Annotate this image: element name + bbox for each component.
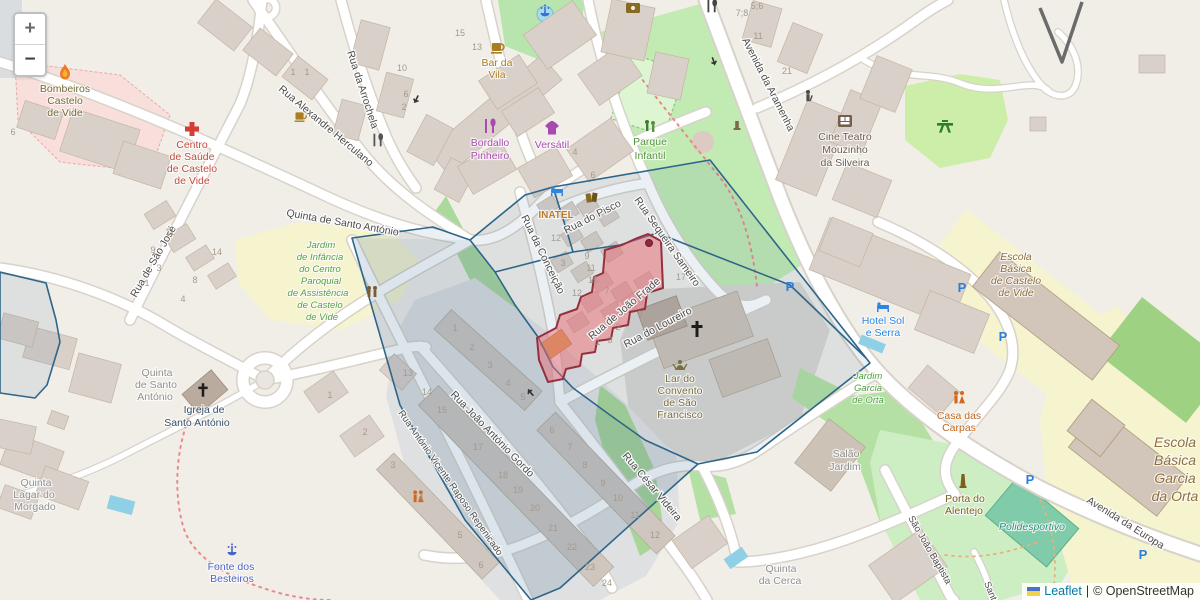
svg-text:Garcia: Garcia — [1154, 470, 1195, 486]
svg-text:de Vide: de Vide — [174, 175, 210, 187]
house-number: 6 — [549, 425, 554, 435]
house-number: 6 — [403, 89, 408, 99]
artwork-icon — [626, 3, 640, 13]
house-number: 1 — [144, 278, 149, 288]
attribution-bar: Leaflet | © OpenStreetMap — [1022, 583, 1200, 600]
poi-label-parque-infantil: Parque — [633, 136, 667, 148]
house-number: 24 — [602, 578, 612, 588]
house-number: 4 — [505, 378, 510, 388]
poi-label-inatel: INATEL — [538, 210, 573, 221]
house-number: 21 — [782, 66, 792, 76]
survey-overlay-layer[interactable] — [0, 160, 870, 600]
survey-polygon-west — [0, 272, 60, 398]
house-number: 22 — [567, 542, 577, 552]
house-number: 18 — [498, 470, 508, 480]
house-number: 12 — [650, 530, 660, 540]
poi-label-porta-alentejo: Porta do — [945, 493, 985, 505]
parking-icon: P — [1139, 547, 1148, 562]
hotel-bed-icon — [877, 302, 889, 312]
house-number: 11 — [165, 227, 174, 237]
house-number: 12 — [572, 288, 582, 298]
poi-label-bar-da-vila: Bar da — [482, 57, 513, 69]
svg-text:de Castelo: de Castelo — [991, 275, 1041, 287]
poi-label-lar-convento: Lar do — [665, 373, 695, 385]
house-number: 7;8 — [736, 8, 749, 18]
poi-label-bombeiros: Bombeiros — [40, 83, 90, 95]
svg-text:da Orta: da Orta — [1152, 488, 1199, 504]
house-number: 3 — [487, 360, 492, 370]
house-number: 23 — [585, 562, 595, 572]
svg-text:Francisco: Francisco — [657, 409, 703, 421]
house-number: 3 — [560, 258, 565, 268]
poi-label-versatil: Versátil — [535, 139, 569, 151]
cinema-icon — [838, 115, 852, 127]
house-number: 15 — [455, 28, 465, 38]
poi-label-centro-saude: Centro — [176, 139, 208, 151]
house-number: 9 — [584, 251, 589, 261]
svg-text:de Assistência: de Assistência — [288, 288, 349, 299]
poi-label-quinta-lagar: Quinta — [21, 477, 52, 489]
poi-label-quinta-cerca: Quinta — [766, 563, 797, 575]
house-number: 4 — [572, 147, 577, 157]
hairdresser-icon — [806, 90, 813, 101]
zoom-control: + − — [13, 12, 47, 77]
parcel-vertex-marker[interactable] — [646, 240, 653, 247]
svg-text:de Vide: de Vide — [306, 312, 338, 323]
house-number: 14 — [212, 247, 222, 257]
svg-text:Vila: Vila — [488, 69, 505, 81]
svg-text:de Vide: de Vide — [47, 107, 83, 119]
svg-text:Convento: Convento — [658, 385, 703, 397]
map-viewport[interactable]: Rua Alexandre Herculano Rua da Arrochela… — [0, 0, 1200, 600]
poi-label-cine-teatro: Cine Teatro — [818, 131, 872, 143]
fire-station-icon — [60, 64, 70, 80]
svg-text:Castelo: Castelo — [47, 95, 83, 107]
house-number: 1 — [327, 390, 332, 400]
zoom-out-button[interactable]: − — [15, 45, 45, 75]
svg-text:de Infância: de Infância — [297, 252, 343, 263]
poi-label-jardim-garcia: Jardim — [853, 371, 883, 382]
house-number: 1 — [452, 323, 457, 333]
ukraine-flag-icon — [1027, 587, 1040, 596]
svg-text:Lagar do: Lagar do — [13, 489, 55, 501]
house-number: 11 — [586, 263, 595, 273]
poi-label-casa-carpas: Casa das — [937, 410, 981, 422]
house-number: 11 — [753, 31, 762, 41]
house-number: 6 — [590, 170, 595, 180]
house-number: 15 — [588, 275, 598, 285]
clothing-shop-icon — [545, 121, 559, 135]
house-number: 2 — [615, 322, 620, 332]
house-number: 10 — [397, 63, 407, 73]
house-number: 1 — [290, 67, 295, 77]
osm-attribution-text: © OpenStreetMap — [1093, 584, 1194, 598]
svg-text:Besteiros: Besteiros — [210, 573, 254, 585]
oneway-arrow-icon — [413, 94, 421, 103]
house-number: 1 — [304, 67, 309, 77]
house-number: 2 — [401, 102, 406, 112]
poi-label-fonte-besteiros: Fonte dos — [208, 561, 255, 573]
svg-text:de São: de São — [663, 397, 696, 409]
house-number: 3 — [156, 263, 161, 273]
house-number: 12 — [551, 233, 561, 243]
poi-label-escola-castelo-vide: Escola — [1000, 251, 1032, 263]
svg-text:Paroquial: Paroquial — [301, 276, 342, 287]
poi-label-jardim-infancia: Jardim — [306, 240, 336, 251]
svg-text:e Serra: e Serra — [866, 327, 901, 339]
zoom-in-button[interactable]: + — [15, 14, 45, 45]
poi-label-igreja-santo-antonio: Igreja de — [184, 404, 225, 416]
house-number: 1 — [595, 337, 600, 347]
svg-text:de Saúde: de Saúde — [170, 151, 215, 163]
house-number: 6 — [478, 560, 483, 570]
svg-text:Infantil: Infantil — [635, 150, 666, 162]
parking-icon: P — [1026, 472, 1035, 487]
house-number: 3 — [607, 335, 612, 345]
house-number: 17 — [473, 442, 483, 452]
house-number: 4 — [418, 492, 423, 502]
house-number: 13 — [472, 42, 482, 52]
poi-label-hotel-sol-serra: Hotel Sol — [862, 315, 905, 327]
svg-text:Básica: Básica — [1000, 263, 1032, 275]
house-number: 20 — [530, 503, 540, 513]
svg-text:Alentejo: Alentejo — [945, 505, 983, 517]
house-number: 7 — [604, 286, 609, 296]
poi-label-quinta-santo-antonio: Quinta — [142, 367, 173, 379]
svg-text:Morgado: Morgado — [14, 501, 56, 513]
fountain-icon — [228, 543, 237, 555]
map-canvas[interactable]: Rua Alexandre Herculano Rua da Arrochela… — [0, 0, 1200, 600]
house-number: 2 — [469, 342, 474, 352]
svg-text:Pinheiro: Pinheiro — [471, 150, 510, 162]
house-number: 3 — [390, 460, 395, 470]
house-number: 9 — [150, 245, 155, 255]
house-number: 10 — [613, 493, 623, 503]
house-number: 5;6 — [751, 1, 764, 11]
house-number: 6 — [10, 127, 15, 137]
poi-label-bordallo-pinheiro: Bordallo — [471, 137, 510, 149]
svg-text:António: António — [137, 391, 173, 403]
poi-label-salao-jardim: Salão — [833, 448, 860, 460]
parking-icon: P — [999, 329, 1008, 344]
poi-label-escola-garcia-orta: Escola — [1154, 434, 1196, 450]
house-number: 2 — [362, 427, 367, 437]
house-number: 11 — [630, 510, 639, 520]
house-number: 17 — [676, 272, 686, 282]
restaurant-icon — [374, 133, 384, 146]
attribution-separator: | — [1086, 584, 1089, 598]
house-number: 15 — [437, 405, 447, 415]
svg-text:de Vide: de Vide — [998, 287, 1034, 299]
svg-text:de Castelo: de Castelo — [167, 163, 217, 175]
poi-label-polidesportivo: Polidesportivo — [999, 521, 1065, 533]
house-number: 5 — [457, 530, 462, 540]
house-number: 5 — [520, 392, 525, 402]
svg-text:de Castelo: de Castelo — [297, 300, 342, 311]
house-number: 19 — [513, 485, 523, 495]
svg-text:Mouzinho: Mouzinho — [822, 144, 868, 156]
house-number: 4 — [180, 294, 185, 304]
leaflet-link[interactable]: Leaflet — [1044, 584, 1082, 598]
svg-text:do Centro: do Centro — [299, 264, 341, 275]
house-number: 13 — [403, 368, 413, 378]
house-number: 8 — [192, 275, 197, 285]
svg-text:Santo António: Santo António — [164, 417, 230, 429]
parking-icon: P — [958, 280, 967, 295]
house-number: 8 — [582, 460, 587, 470]
svg-text:Garcia: Garcia — [854, 383, 882, 394]
svg-text:da Silveira: da Silveira — [820, 157, 869, 169]
svg-text:Carpas: Carpas — [942, 422, 976, 434]
svg-text:da Cerca: da Cerca — [759, 575, 802, 587]
svg-text:Jardim: Jardim — [829, 461, 861, 473]
parking-icon: P — [786, 279, 795, 294]
house-number: 9 — [637, 309, 642, 319]
svg-text:de Santo: de Santo — [135, 379, 177, 391]
house-number: 14 — [422, 387, 432, 397]
house-number: 7 — [567, 442, 572, 452]
house-number: 9 — [600, 478, 605, 488]
house-number: 21 — [548, 523, 558, 533]
svg-text:Básica: Básica — [1154, 452, 1196, 468]
svg-text:de Orta: de Orta — [852, 395, 884, 406]
